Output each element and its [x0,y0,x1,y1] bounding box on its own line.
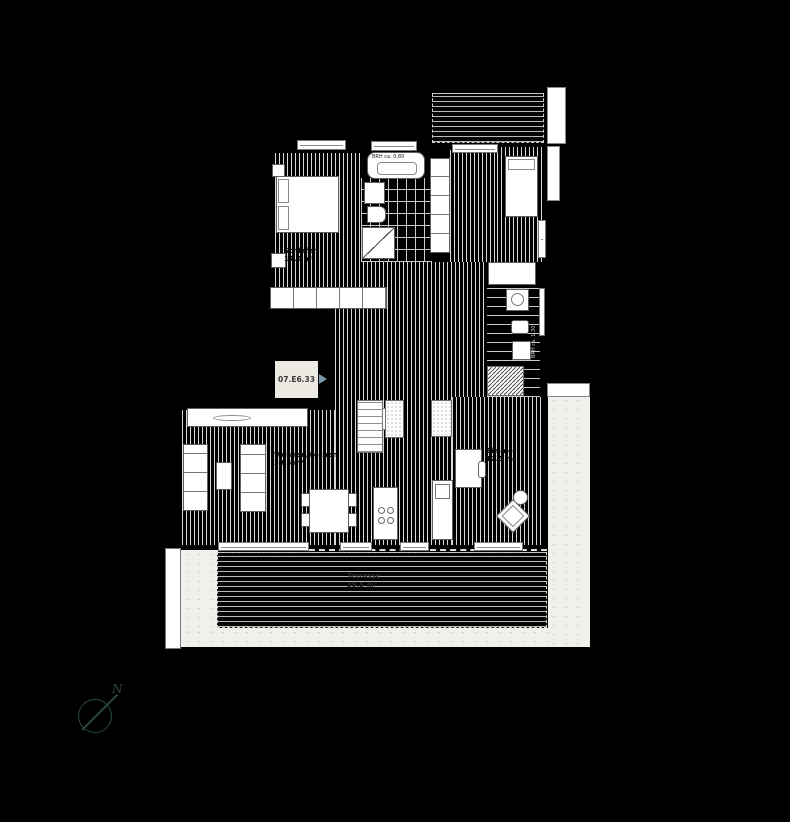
washer-drum-icon [511,293,524,306]
burner-icon-2 [387,507,394,514]
floorplan-canvas: BRH ca. 0.80 BRH ca. 1.30 [0,0,790,822]
window-height-note-tub: BRH ca. 0.80 [372,155,404,160]
unit-tag-label: 07.E6.33 [278,375,315,384]
compass-north-label: N [112,682,123,696]
stair-void-a [385,400,404,438]
bedroom1-label: Schlafen 14.0 m² [284,247,318,263]
living-area: 38.5 m² [274,459,338,467]
living-name: Wohnen/Kochen [274,451,338,459]
wardrobe-hall [430,158,450,253]
bedroom1-name: Schlafen [284,247,318,255]
shower2 [487,366,524,396]
garden-area-bottom [181,628,590,647]
dining-table [309,489,349,533]
sink2 [511,320,529,334]
dining-chair-2 [301,513,310,527]
window-south-2 [340,542,372,551]
terrace-name: Terrasse [347,572,380,581]
terrace-area: 39.5 m² [347,581,380,590]
window-bathroom2-right [539,288,545,336]
sink1 [364,182,385,204]
unit-tag[interactable]: 07.E6.33 [275,361,318,398]
wardrobe-bedroom1 [270,287,387,309]
pillow2 [278,206,289,230]
kitchen-counter [373,487,398,540]
window-south-3 [400,542,429,551]
unit-tag-arrow-icon [319,374,327,384]
window-bedroom1 [297,140,346,150]
dining-chair-4 [348,513,357,527]
wall-block-right-top [547,383,590,397]
bedroom1-area: 14.0 m² [284,255,318,263]
burner-icon-1 [378,507,385,514]
zimmer-label: Zimmer 12.5 m² [486,447,516,463]
coffee-table [216,462,232,490]
sofa-left [183,444,208,511]
stair-void-b [431,400,452,437]
dining-chair-1 [301,493,310,507]
balcony-above [432,93,544,143]
tv-icon [213,415,251,421]
toilet1 [367,206,386,223]
living-label: Wohnen/Kochen 38.5 m² [274,451,338,467]
window-bathroom1 [371,141,417,151]
dresser-bedroom2 [488,262,536,285]
window-height-note-bath2: BRH ca. 1.30 [531,312,537,358]
sink-basin-icon [435,484,450,499]
kitchen-island [432,480,453,540]
window-south-4 [474,542,523,551]
path-strip-left [165,548,181,649]
dining-chair-3 [348,493,357,507]
pillow1 [278,179,289,203]
burner-icon-3 [378,517,385,524]
toilet2 [512,341,531,360]
window-hall [452,144,498,153]
bed2 [505,156,538,217]
desk-chair [478,461,486,478]
wall-strip-top-right-1 [547,87,566,144]
staircase [357,400,383,453]
zimmer-name: Zimmer [486,447,516,455]
window-south-1 [218,542,309,551]
terrace-label: Terrasse 39.5 m² [347,572,380,590]
window-bedroom2-right [538,220,546,258]
bed1 [276,176,339,233]
bathtub-basin [377,162,417,175]
zimmer-area: 12.5 m² [486,455,516,463]
terrace-deck [217,552,547,628]
pillow3 [508,159,535,170]
burner-icon-4 [387,517,394,524]
garden-area-right [548,396,590,646]
shower1 [362,227,395,259]
wall-strip-top-right-2 [547,146,560,201]
sideboard [187,408,308,427]
lounge-chair-inner [502,505,525,528]
sofa-right [240,444,266,512]
washing-machine [506,289,529,311]
